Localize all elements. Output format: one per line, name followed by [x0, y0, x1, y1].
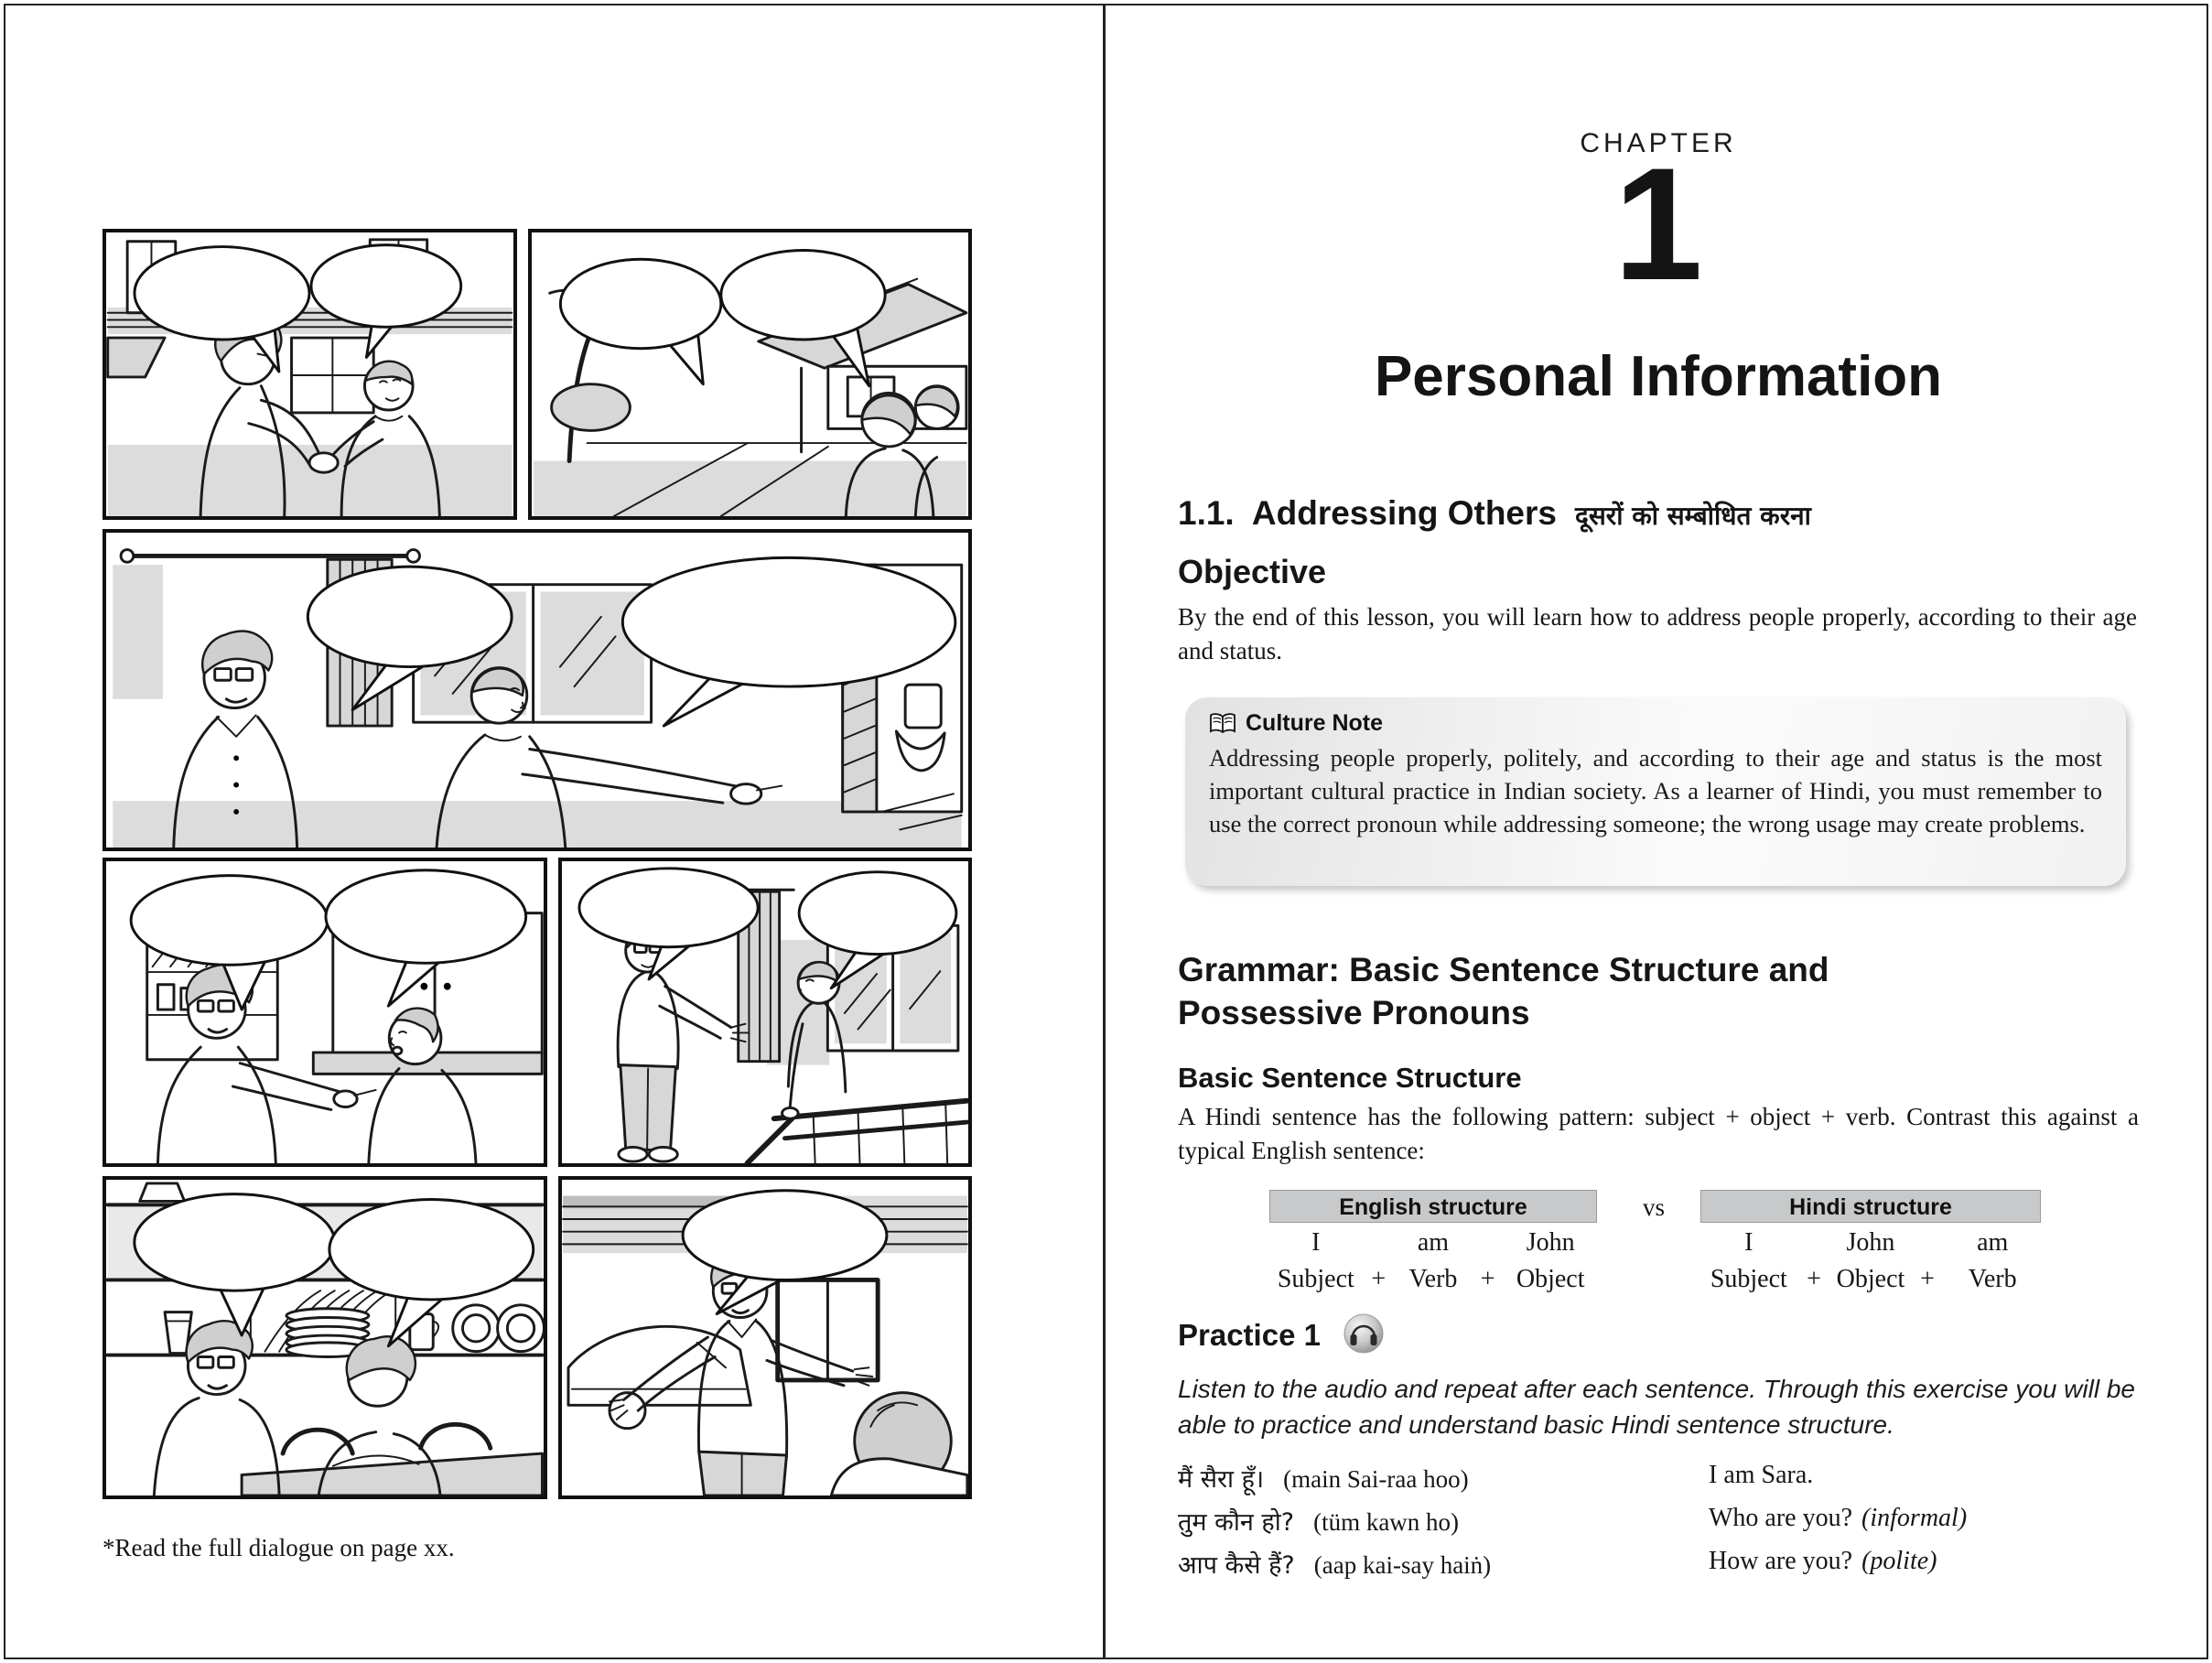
left-page: *Read the full dialogue on page xx.	[0, 0, 1103, 1663]
culture-note-box: Culture Note Addressing people properly,…	[1185, 697, 2126, 886]
structure-comparison: English structure I am John Subject + Ve…	[1105, 1190, 2212, 1309]
grammar-heading: Grammar: Basic Sentence Structure andPos…	[1178, 948, 1829, 1034]
grammar-heading-line2: Possessive Pronouns	[1178, 994, 1530, 1031]
comic-panel-3	[103, 529, 972, 851]
hindi-parts-row: Subject + Object + Verb	[1700, 1263, 2041, 1296]
chapter-number: 1	[1105, 145, 2212, 305]
culture-note-body: Addressing people properly, politely, an…	[1209, 741, 2102, 840]
vs-label: vs	[1617, 1190, 1690, 1223]
transliteration: (tüm kawn ho)	[1313, 1508, 1459, 1536]
transliteration: (aap kai-say haiṅ)	[1314, 1551, 1491, 1579]
panel-3-illustration	[106, 533, 968, 848]
practice-heading: Practice 1	[1178, 1318, 1321, 1353]
english-translation: I am Sara.	[1709, 1461, 1822, 1490]
basic-structure-subheading: Basic Sentence Structure	[1178, 1062, 1522, 1095]
panel-1-illustration	[106, 232, 513, 516]
headphones-audio-icon	[1343, 1312, 1385, 1355]
comic-panel-7	[558, 1176, 972, 1499]
practice-row: आप कैसे हैं? (aap kai-say haiṅ) How are …	[1178, 1547, 2175, 1590]
comic-panel-1	[103, 229, 517, 520]
section-title-hindi: दूसरों को सम्बोधित करना	[1575, 501, 1811, 531]
english-translation: Who are you?(informal)	[1709, 1504, 1967, 1533]
hindi-sentence: तुम कौन हो?	[1178, 1508, 1294, 1537]
panel-4-illustration	[106, 861, 544, 1163]
practice-sentence-list: मैं सैरा हूँ। (main Sai-raa hoo) I am Sa…	[1178, 1461, 2175, 1590]
english-translation: How are you?(polite)	[1709, 1547, 1937, 1576]
hindi-sentence: आप कैसे हैं?	[1178, 1551, 1295, 1580]
culture-note-header: Culture Note	[1209, 710, 2102, 737]
hindi-sentence: मैं सैरा हूँ।	[1178, 1465, 1264, 1494]
register-note: (informal)	[1861, 1504, 1967, 1532]
practice-row: मैं सैरा हूँ। (main Sai-raa hoo) I am Sa…	[1178, 1461, 2175, 1504]
english-structure-group: English structure I am John Subject + Ve…	[1269, 1190, 1597, 1296]
hindi-words-row: I John am	[1700, 1226, 2041, 1259]
register-note: (polite)	[1861, 1547, 1937, 1575]
chapter-title: Personal Information	[1105, 344, 2212, 409]
comic-panel-6	[103, 1176, 547, 1499]
practice-row: तुम कौन हो? (tüm kawn ho) Who are you?(i…	[1178, 1504, 2175, 1547]
hindi-structure-header: Hindi structure	[1700, 1190, 2041, 1223]
transliteration: (main Sai-raa hoo)	[1283, 1465, 1468, 1493]
grammar-heading-line1: Grammar: Basic Sentence Structure and	[1178, 951, 1829, 988]
objective-heading: Objective	[1178, 553, 1326, 591]
comic-caption: *Read the full dialogue on page xx.	[103, 1534, 455, 1562]
open-book-icon	[1209, 713, 1236, 735]
section-heading: 1.1. Addressing Othersदूसरों को सम्बोधित…	[1178, 494, 1811, 533]
practice-heading-row: Practice 1	[1178, 1316, 1385, 1355]
comic-strip	[103, 229, 972, 1501]
english-parts-row: Subject + Verb + Object	[1269, 1263, 1597, 1296]
panel-7-illustration	[562, 1180, 968, 1496]
panel-5-illustration	[562, 861, 968, 1163]
comic-panel-5	[558, 858, 972, 1167]
grammar-intro: A Hindi sentence has the following patte…	[1178, 1100, 2139, 1168]
section-number: 1.1.	[1178, 494, 1235, 532]
english-structure-header: English structure	[1269, 1190, 1597, 1223]
panel-2-illustration	[532, 232, 968, 516]
textbook-spread: *Read the full dialogue on page xx. CHAP…	[0, 0, 2212, 1663]
right-page: CHAPTER 1 Personal Information 1.1. Addr…	[1105, 0, 2212, 1663]
english-words-row: I am John	[1269, 1226, 1597, 1259]
objective-body: By the end of this lesson, you will lear…	[1178, 600, 2137, 668]
culture-note-heading: Culture Note	[1246, 710, 1383, 737]
practice-instructions: Listen to the audio and repeat after eac…	[1178, 1371, 2157, 1442]
comic-panel-2	[528, 229, 972, 520]
hindi-structure-group: Hindi structure I John am Subject + Obje…	[1700, 1190, 2041, 1296]
panel-6-illustration	[106, 1180, 544, 1496]
comic-panel-4	[103, 858, 547, 1167]
section-title: Addressing Others	[1252, 494, 1557, 532]
